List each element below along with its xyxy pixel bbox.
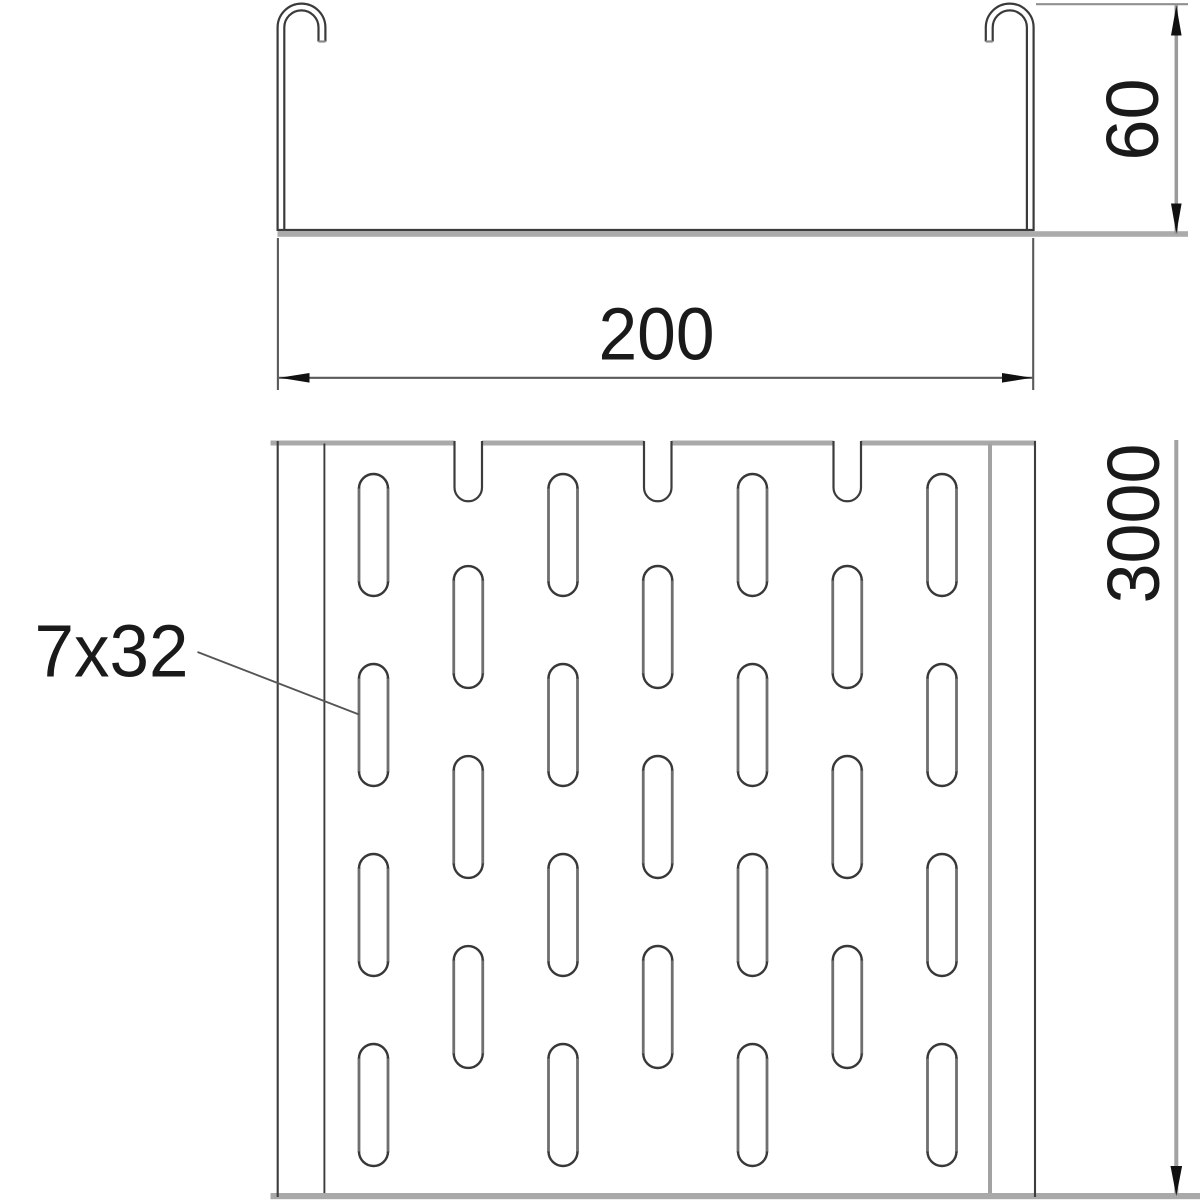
svg-text:7x32: 7x32 [35,610,189,693]
svg-text:60: 60 [1091,78,1174,160]
svg-text:200: 200 [599,293,715,376]
svg-text:3000: 3000 [1092,444,1175,604]
